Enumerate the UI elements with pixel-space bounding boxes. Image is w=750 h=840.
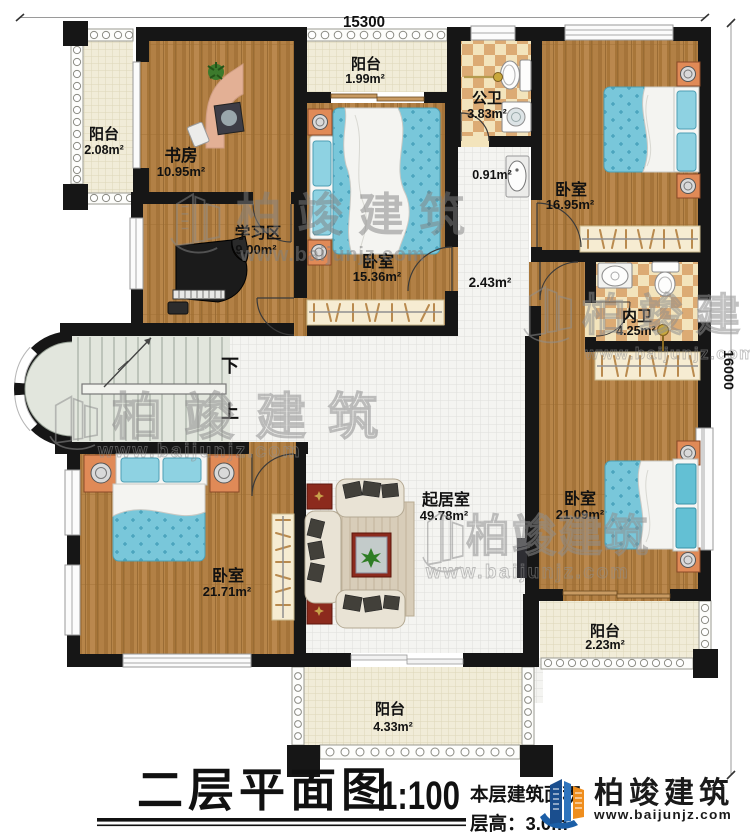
svg-text:16000: 16000	[721, 350, 737, 390]
svg-text:3.83m²: 3.83m²	[467, 107, 507, 121]
svg-text:公卫: 公卫	[472, 90, 502, 107]
svg-text:二层平面图: 二层平面图	[137, 764, 392, 816]
svg-text:柏竣建筑: 柏竣建筑	[236, 189, 480, 241]
svg-text:www.baijunjz.com: www.baijunjz.com	[593, 807, 732, 822]
svg-text:www.baijunjz.com: www.baijunjz.com	[97, 441, 302, 462]
svg-text:卧室: 卧室	[564, 489, 596, 508]
svg-text:15.36m²: 15.36m²	[353, 269, 402, 284]
svg-text:阳台: 阳台	[351, 55, 381, 73]
svg-text:21.71m²: 21.71m²	[203, 584, 252, 599]
svg-text:15300: 15300	[343, 14, 385, 31]
svg-text:柏竣建筑: 柏竣建筑	[594, 776, 734, 810]
svg-text:卧室: 卧室	[212, 566, 244, 585]
svg-text:10.95m²: 10.95m²	[157, 164, 206, 179]
svg-text:柏竣建筑: 柏竣建筑	[112, 389, 400, 445]
svg-text:16.95m²: 16.95m²	[546, 197, 595, 212]
svg-text:2.43m²: 2.43m²	[469, 275, 512, 290]
svg-text:起居室: 起居室	[421, 490, 470, 509]
svg-text:4.33m²: 4.33m²	[373, 720, 413, 734]
svg-text:1.99m²: 1.99m²	[345, 72, 385, 86]
svg-text:柏竣建筑: 柏竣建筑	[466, 512, 650, 561]
svg-text:阳台: 阳台	[375, 700, 405, 718]
svg-text:柏竣建筑: 柏竣建筑	[582, 291, 750, 340]
svg-text:1:100: 1:100	[380, 774, 460, 818]
svg-text:下: 下	[221, 356, 239, 376]
svg-text:阳台: 阳台	[89, 125, 119, 143]
svg-text:www.baijunjz.com: www.baijunjz.com	[239, 244, 425, 266]
svg-text:www.baijunjz.com: www.baijunjz.com	[425, 562, 630, 583]
svg-text:0.91m²: 0.91m²	[472, 168, 512, 182]
svg-text:书房: 书房	[165, 145, 198, 165]
svg-text:2.23m²: 2.23m²	[585, 638, 625, 652]
svg-text:2.08m²: 2.08m²	[84, 143, 124, 157]
